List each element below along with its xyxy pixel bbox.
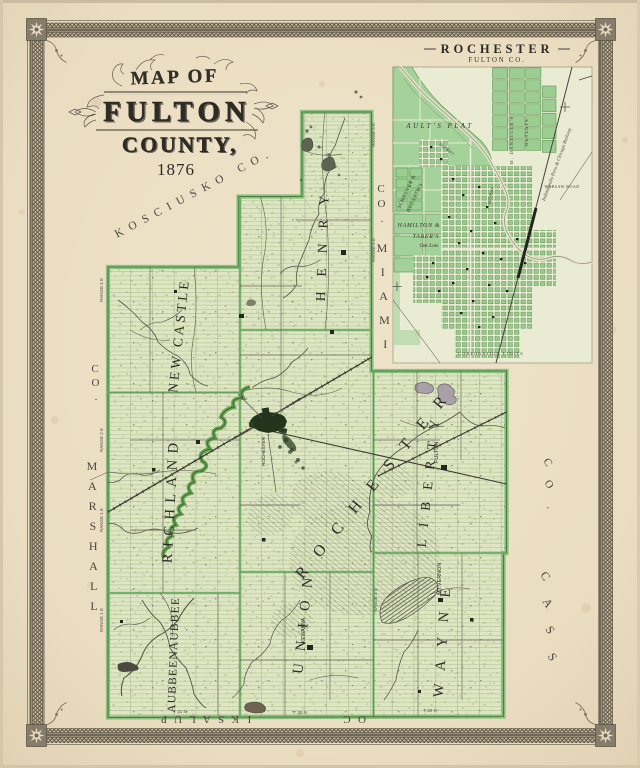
svg-text:RANGE 2 E: RANGE 2 E — [99, 428, 104, 452]
svg-text:T 30 N: T 30 N — [293, 710, 306, 715]
svg-text:P: P — [161, 713, 167, 725]
svg-text:O: O — [92, 377, 100, 389]
svg-text:AULT'S PLAT: AULT'S PLAT — [405, 123, 473, 130]
svg-text:RANGE 1 E: RANGE 1 E — [99, 508, 104, 532]
svg-text:TABER'S: TABER'S — [413, 234, 440, 240]
svg-text:RANGE 1 E: RANGE 1 E — [99, 608, 104, 632]
svg-text:RANGE 4 E: RANGE 4 E — [373, 588, 378, 612]
svg-text:.: . — [381, 213, 384, 225]
svg-text:FULTON CO.: FULTON CO. — [469, 57, 526, 64]
svg-text:RANGE 4 E: RANGE 4 E — [99, 278, 104, 302]
svg-text:RANGE 5 E: RANGE 5 E — [371, 123, 376, 147]
svg-text:U: U — [174, 713, 182, 725]
svg-text:A: A — [88, 479, 97, 493]
svg-text:.: . — [372, 713, 375, 725]
svg-text:T 30 N: T 30 N — [423, 708, 436, 713]
svg-text:WARSAW ROAD: WARSAW ROAD — [544, 184, 579, 189]
svg-text:A: A — [89, 559, 98, 573]
svg-text:MAP OF: MAP OF — [130, 65, 219, 89]
svg-text:O: O — [378, 198, 386, 210]
svg-text:OUTLOTS: OUTLOTS — [524, 118, 529, 145]
svg-text:I: I — [381, 265, 385, 279]
svg-text:H: H — [89, 539, 98, 553]
svg-text:A: A — [203, 713, 211, 725]
svg-text:K: K — [231, 713, 239, 725]
svg-text:COUNTY,: COUNTY, — [122, 132, 238, 157]
svg-text:S: S — [90, 519, 97, 533]
svg-text:O: O — [358, 713, 366, 725]
svg-text:L: L — [90, 599, 97, 613]
svg-text:RANGE 5 E: RANGE 5 E — [371, 238, 376, 262]
svg-text:M: M — [87, 459, 98, 473]
svg-text:L: L — [189, 713, 196, 725]
svg-text:R: R — [89, 499, 97, 513]
svg-text:HAMILTON &: HAMILTON & — [397, 223, 441, 229]
svg-text:ROCHESTER: ROCHESTER — [441, 42, 554, 56]
svg-text:Out Lots: Out Lots — [419, 243, 438, 249]
svg-text:S: S — [218, 713, 224, 725]
svg-text:C: C — [91, 363, 98, 375]
svg-text:M: M — [377, 241, 388, 255]
svg-text:T 31 N: T 31 N — [173, 709, 186, 714]
svg-text:A: A — [379, 289, 388, 303]
svg-text:C: C — [377, 183, 384, 195]
svg-text:I: I — [247, 713, 251, 725]
svg-text:C: C — [343, 713, 350, 725]
svg-text:M: M — [379, 313, 390, 327]
svg-text:FULTON: FULTON — [103, 96, 251, 128]
svg-text:ROCHESTER: ROCHESTER — [261, 436, 266, 466]
svg-text:I: I — [383, 337, 387, 351]
svg-text:CORPORATION LIMITS: CORPORATION LIMITS — [458, 351, 524, 356]
svg-text:1876: 1876 — [157, 160, 195, 179]
svg-text:.: . — [95, 391, 98, 403]
svg-text:M. DANZIGER'S: M. DANZIGER'S — [509, 116, 514, 165]
svg-text:L: L — [90, 579, 97, 593]
